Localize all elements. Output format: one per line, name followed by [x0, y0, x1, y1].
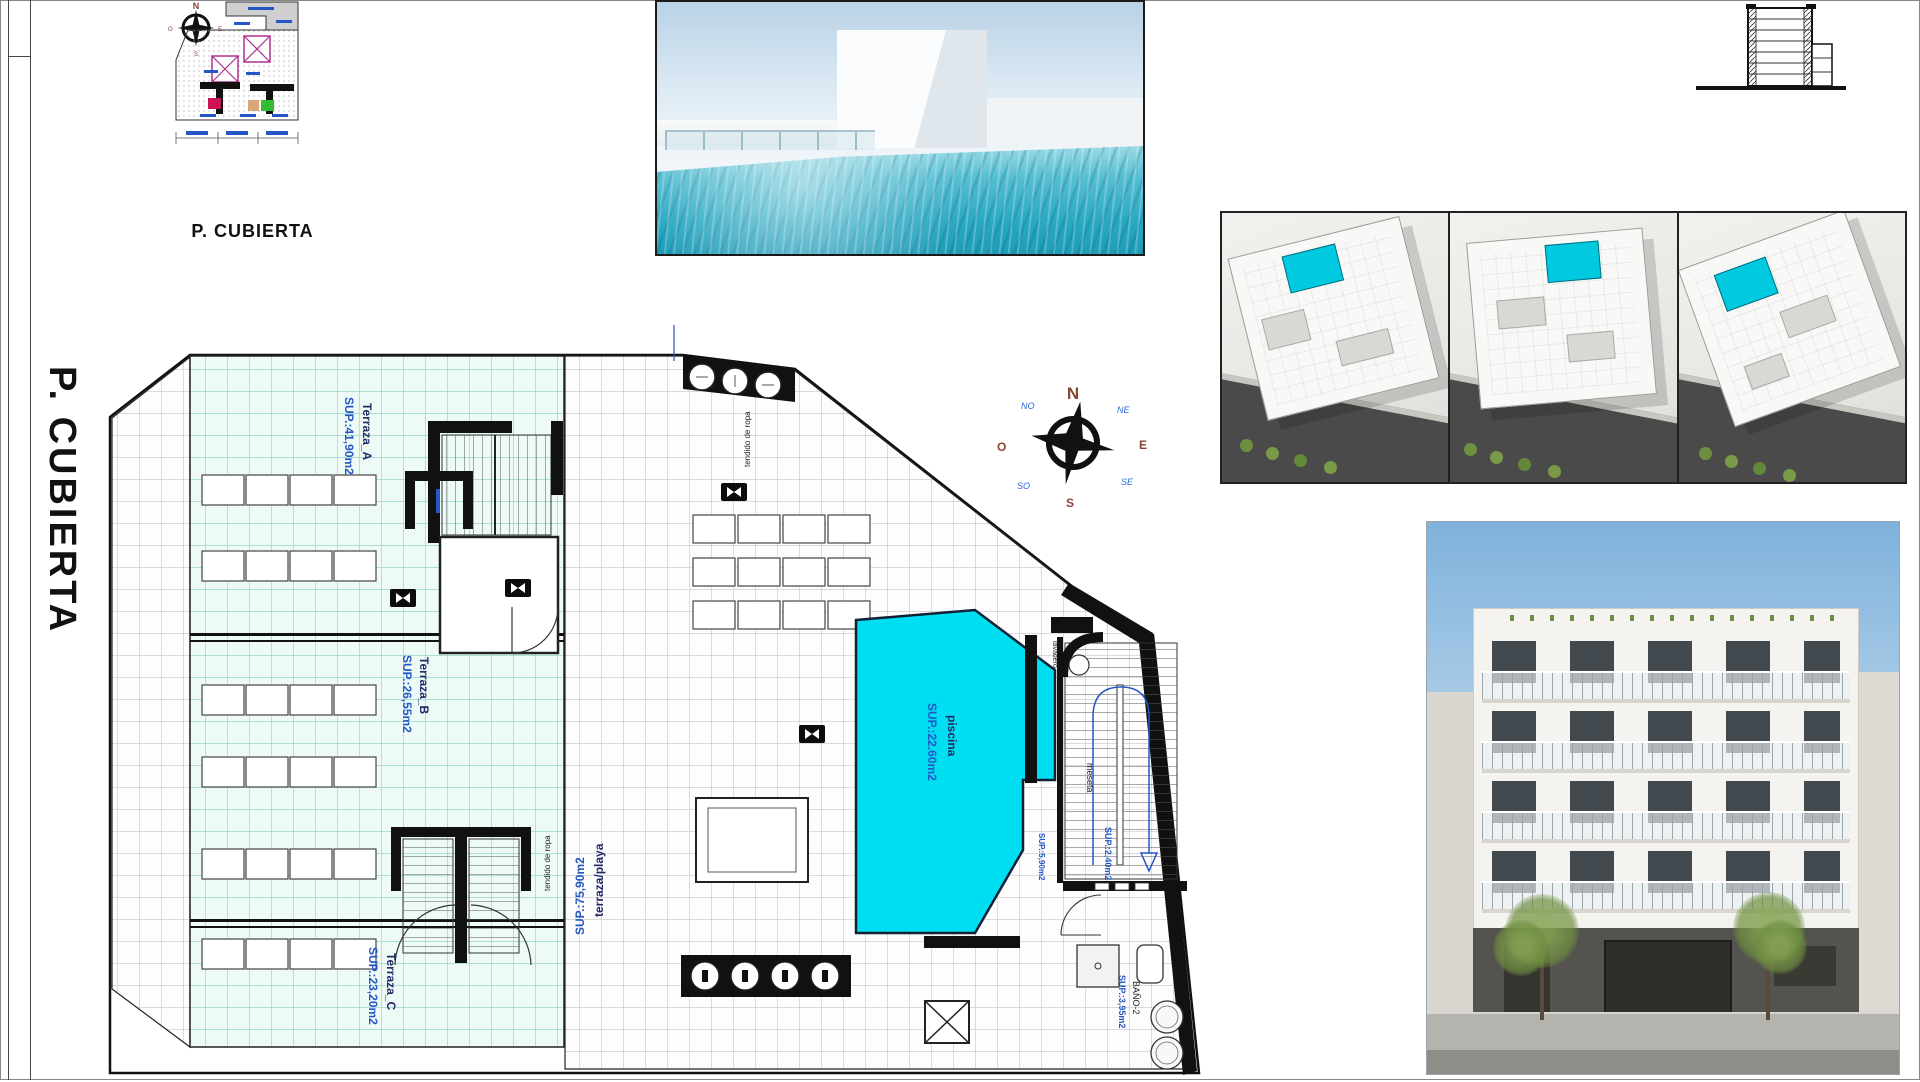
compass-s: S [1066, 496, 1074, 510]
white-volume-low [987, 98, 1143, 148]
label-terraza-a-name: Terraza_A [360, 403, 374, 460]
outdoor-shower [925, 1001, 969, 1043]
compass-se: SE [1121, 477, 1134, 487]
aerial-render-2 [1450, 213, 1678, 482]
street-trees [1240, 439, 1253, 452]
mini-compass-n: N [193, 1, 200, 11]
mini-compass-w: O [168, 27, 173, 33]
toilet [1137, 945, 1163, 983]
label-terraza-b-name: Terraza_B [417, 657, 431, 714]
pool-render-photo [655, 0, 1145, 256]
label-meseta: meseta [1085, 763, 1095, 793]
facade-floor-2 [1474, 773, 1858, 843]
glass-balustrade [665, 130, 875, 150]
neighbor-building-right [1858, 672, 1899, 1014]
section-thumbnail [1690, 2, 1852, 96]
frame-line-outer [8, 0, 9, 1080]
label-bano-area: SUP.:3,95m2 [1117, 975, 1127, 1028]
drawing-sheet: { "sheet": { "side_title": "P. CUBIERTA"… [0, 0, 1920, 1080]
pool-south-wall [924, 936, 1020, 948]
garage-door [1604, 940, 1732, 1014]
label-piscina-name: piscina [945, 715, 959, 757]
road [1427, 1050, 1899, 1074]
label-small-room-area: SUP.:5,90m2 [1037, 833, 1046, 881]
pool-east-wall [1025, 635, 1037, 783]
mini-plan-caption: P. CUBIERTA [160, 221, 345, 242]
stair-right-core [1057, 637, 1187, 935]
label-terraza-c-name: Terraza_C [384, 953, 398, 1010]
stair-top [428, 421, 563, 653]
label-terraza-c-area: SUP.:23,20m2 [366, 947, 380, 1025]
bottom-service-band [681, 955, 851, 997]
label-piscina-area: SUP.:22.60m2 [925, 703, 939, 781]
perimeter-walkway [112, 357, 190, 1047]
spa-square [696, 798, 808, 882]
neighbor-building-left [1427, 692, 1474, 1014]
facade-render-photo [1426, 521, 1900, 1075]
compass-sw: SO [1017, 481, 1030, 491]
label-meseta-area: SUP.:2,40m2 [1103, 827, 1113, 880]
rooftop-pool [1544, 240, 1601, 283]
label-lavadero: lavadero [1051, 641, 1058, 668]
compass-n: N [1067, 384, 1079, 403]
label-playa-name: terraza/playa [592, 843, 606, 917]
facade-floor-4 [1474, 633, 1858, 703]
street-tree-right [1723, 890, 1813, 1020]
aerial-renders-strip [1220, 211, 1907, 484]
mini-site-plan: N S E O [148, 0, 356, 218]
frame-tick [8, 56, 31, 57]
label-playa-area: SUP.:75,90m2 [573, 857, 587, 935]
label-tendido-1: tendido de ropa [543, 835, 552, 891]
street-tree-left [1497, 890, 1587, 1020]
label-bano-name: BAÑO-2 [1131, 981, 1141, 1015]
main-floor-plan: N S E O NE NO SE SO Terraza_A SUP.:41,90… [95, 325, 1215, 1082]
label-terraza-a-area: SUP.:41,90m2 [342, 397, 356, 475]
label-tendido-2: tendido de ropa [743, 411, 752, 467]
label-terraza-b-area: SUP.:26,55m2 [400, 655, 414, 733]
stair-middle [391, 827, 531, 965]
compass-e: E [1139, 438, 1147, 452]
facade-floor-3 [1474, 703, 1858, 773]
pool-water [657, 146, 1143, 254]
mini-dimension-values [186, 131, 288, 135]
shower-tray [1077, 945, 1119, 987]
aerial-render-3 [1679, 213, 1905, 482]
aerial-render-1 [1222, 213, 1450, 482]
compass-rose: N S E O NE NO SE SO [997, 384, 1147, 510]
lavadero-sink [1069, 655, 1089, 675]
plan-side-title: P. CUBIERTA [40, 366, 83, 634]
compass-nw: NO [1021, 401, 1035, 411]
frame-line-inner [30, 0, 31, 1080]
building-roof [1466, 227, 1656, 409]
compass-ne: NE [1117, 405, 1130, 415]
core-top-wall [1051, 617, 1093, 633]
compass-w: O [997, 440, 1006, 454]
roof-plants [1494, 615, 1838, 621]
street-trees [1699, 447, 1712, 460]
